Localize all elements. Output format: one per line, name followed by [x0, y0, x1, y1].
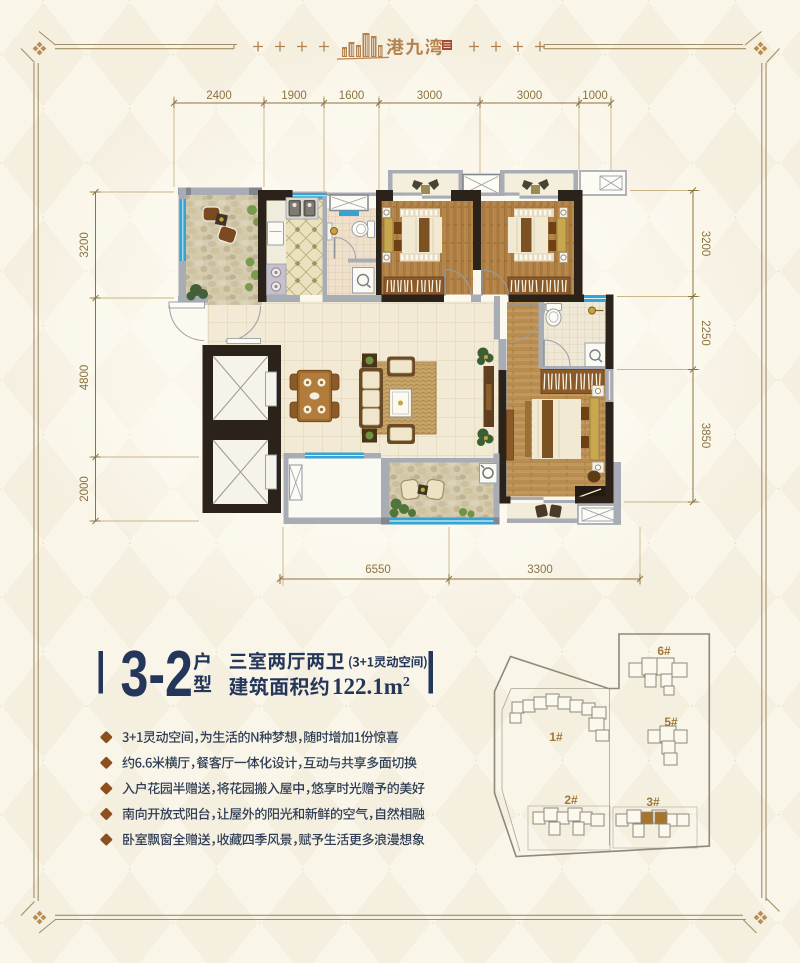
svg-text:3200: 3200 [699, 231, 711, 257]
svg-text:2250: 2250 [699, 320, 711, 346]
svg-text:3000: 3000 [417, 90, 443, 102]
svg-text:3850: 3850 [699, 423, 711, 449]
svg-text:6#: 6# [657, 644, 671, 658]
svg-text:5#: 5# [664, 715, 678, 729]
svg-text:1900: 1900 [281, 90, 307, 102]
svg-text:2000: 2000 [79, 476, 91, 502]
svg-text:2#: 2# [564, 793, 578, 807]
svg-text:2400: 2400 [206, 90, 232, 102]
svg-text:3300: 3300 [527, 564, 553, 576]
svg-text:1600: 1600 [339, 90, 365, 102]
svg-text:3#: 3# [646, 795, 660, 809]
svg-text:1#: 1# [549, 730, 563, 744]
svg-text:1000: 1000 [582, 90, 608, 102]
svg-text:3000: 3000 [517, 90, 543, 102]
svg-text:3200: 3200 [79, 232, 91, 258]
svg-text:6550: 6550 [365, 564, 391, 576]
svg-text:122.1m2: 122.1m2 [332, 674, 410, 699]
svg-text:4800: 4800 [79, 365, 91, 391]
svg-text:3-2: 3-2 [121, 638, 193, 711]
